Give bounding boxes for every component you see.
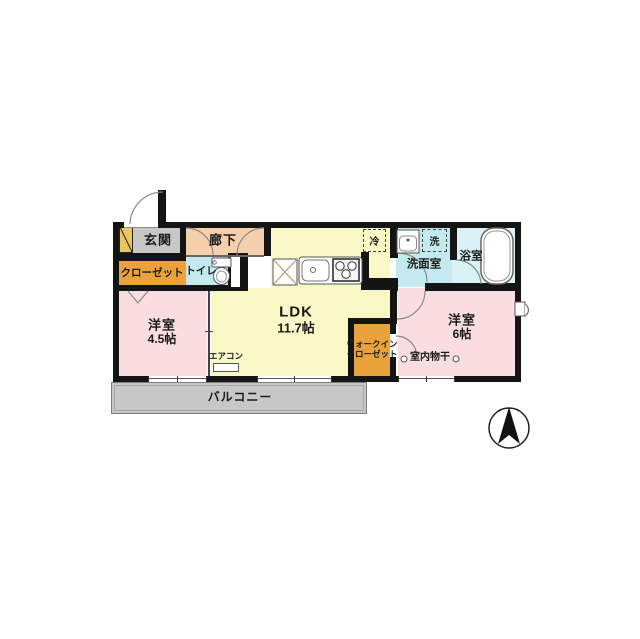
stove-burner [336,262,344,270]
wic-label-line2: クローゼット [346,350,397,359]
entry-door-arc [130,192,163,224]
closet-folding-door-mark [128,291,148,303]
drying-hook [401,356,407,362]
fixtures-overlay [0,0,640,639]
vanity-basin [400,236,417,251]
floor-plan: 冷 洗 [0,0,640,639]
drying-label: 室内物干 [410,353,450,363]
rouka-right-door-arc [237,228,264,255]
bath-door-arc [456,260,481,284]
rouka-label: 廊下 [209,234,237,247]
bedroom6-label: 洋室 [448,314,476,327]
stove-burner [348,262,356,270]
north-compass-icon [489,407,529,448]
stove-burner [342,270,350,278]
balcony-label: バルコニー [208,391,273,403]
kitchen-faucet [311,268,316,273]
wall-vent-fan [525,304,528,316]
ldk-size-label: 11.7帖 [277,322,315,335]
yokushitsu-label: 浴室 [460,251,483,263]
toilet-handle [213,261,217,265]
wic-label-line1: ウォークイン [346,340,397,349]
vanity-faucet [407,239,410,242]
aircon-label: エアコン [209,352,243,361]
drying-hook [453,356,459,362]
bedroom6-size-label: 6帖 [453,328,472,340]
bedroom45-size-label: 4.5帖 [148,333,177,345]
closet-label: クローゼット [121,268,184,279]
toilet-label: トイレ [185,266,217,277]
shoe-cabinet-diagonal [120,227,132,252]
bedroom6-door-arc [397,291,425,319]
senmenshitsu-label: 洗面室 [407,259,442,271]
bedroom45-label: 洋室 [148,319,176,332]
wall-vent [515,302,525,316]
genkan-label: 玄関 [144,234,172,247]
ldk-label: LDK [279,305,313,320]
